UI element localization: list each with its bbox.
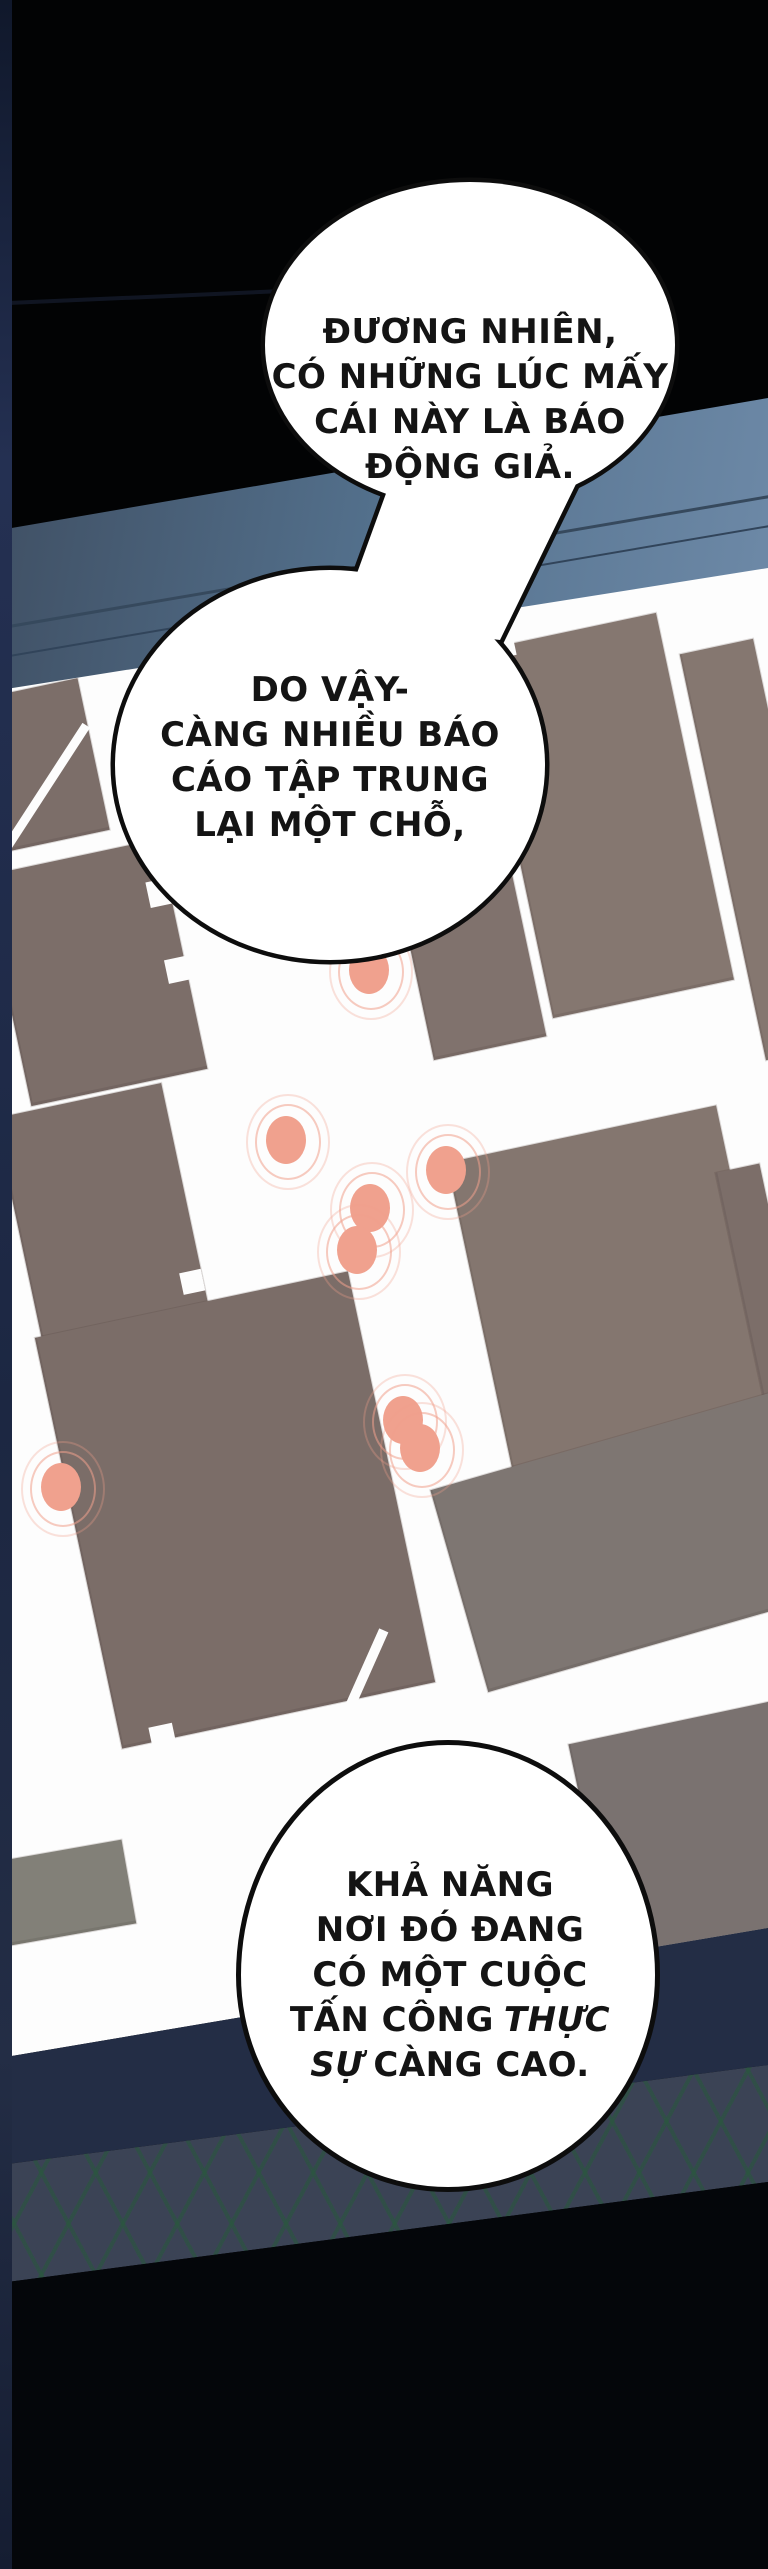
bubble-text-line: TẤN CÔNGTHỰC: [290, 1998, 610, 2043]
panel-left-edge-strip: [0, 0, 12, 2569]
bubble-text-line: KHẢ NĂNG: [346, 1863, 554, 1908]
bubble-text-line: DO VẬY-: [251, 668, 410, 713]
speech-bubble-1-text: ĐƯƠNG NHIÊN, CÓ NHỮNG LÚC MẤY CÁI NÀY LÀ…: [250, 285, 690, 515]
speech-bubble-2-text: DO VẬY- CÀNG NHIỀU BÁO CÁO TẬP TRUNG LẠI…: [115, 650, 545, 865]
bubble-text-line: CÓ MỘT CUỘC: [312, 1953, 587, 1998]
bubble-text-line: CÓ NHỮNG LÚC MẤY: [272, 355, 669, 400]
bubble-text-line: ĐỘNG GIẢ.: [365, 445, 575, 490]
speech-bubble-3-text: KHẢ NĂNG NƠI ĐÓ ĐANG CÓ MỘT CUỘC TẤN CÔN…: [240, 1830, 660, 2120]
alert-dot-core: [426, 1146, 466, 1194]
bubble-text-line: NƠI ĐÓ ĐANG: [316, 1908, 585, 1953]
alert-dot-core: [266, 1116, 306, 1164]
alert-dot-core: [349, 946, 389, 994]
bubble-text-line: LẠI MỘT CHỖ,: [194, 803, 465, 848]
bubble-text-line: CÁI NÀY LÀ BÁO: [314, 400, 626, 445]
bubble-text-line: ĐƯƠNG NHIÊN,: [323, 310, 618, 355]
bubble-text-line: CÁO TẬP TRUNG: [171, 758, 489, 803]
bubble-text-line: CÀNG NHIỀU BÁO: [160, 713, 500, 758]
alert-dot-core: [400, 1424, 440, 1472]
alert-dot-core: [337, 1226, 377, 1274]
alert-dot-core: [41, 1463, 81, 1511]
bubble-text-line: SỰCÀNG CAO.: [310, 2043, 589, 2088]
